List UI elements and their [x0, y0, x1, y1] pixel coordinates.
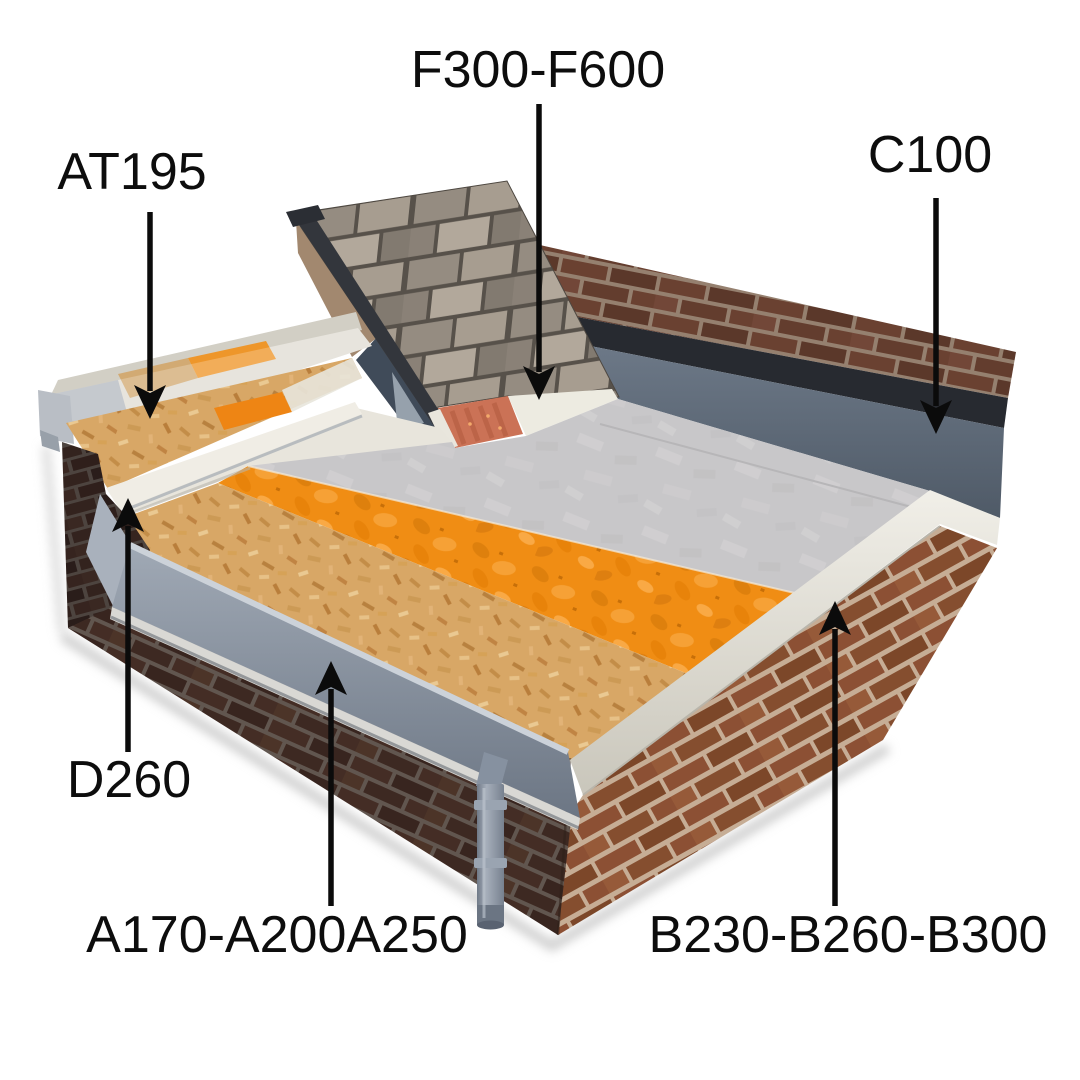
label-at195: AT195	[57, 146, 206, 198]
label-d260: D260	[67, 754, 191, 806]
downpipe-collar	[474, 800, 507, 810]
label-f300-f600: F300-F600	[411, 44, 665, 96]
diagram-canvas: F300-F600 AT195 C100 D260 A170-A200A250 …	[0, 0, 1080, 1080]
downpipe-end	[477, 921, 504, 930]
arrow-at195	[134, 212, 166, 419]
label-a170-a200a250: A170-A200A250	[86, 909, 468, 961]
label-b230-b260-b300: B230-B260-B300	[649, 909, 1048, 961]
downpipe	[474, 752, 508, 930]
label-c100: C100	[868, 129, 992, 181]
downpipe-collar	[474, 858, 507, 868]
